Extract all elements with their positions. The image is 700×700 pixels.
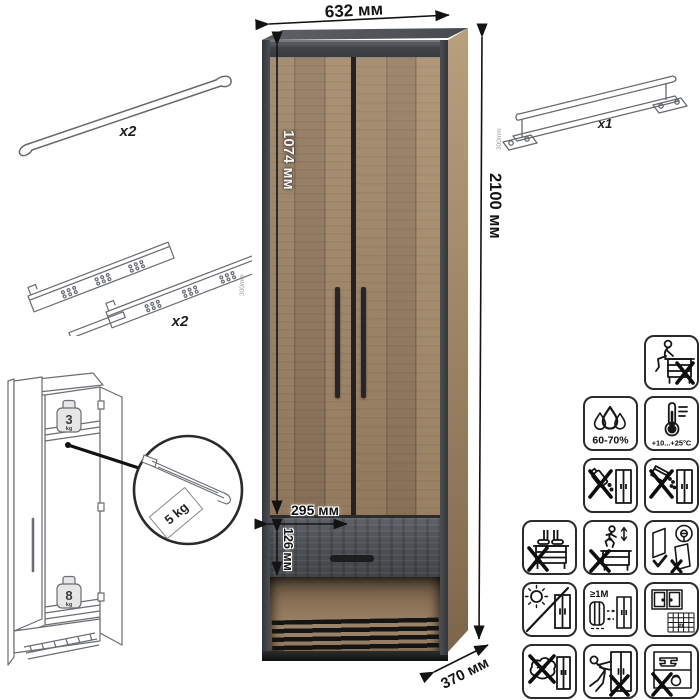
no-wet-cleaning-icon <box>522 644 577 699</box>
wardrobe-left-door <box>14 377 42 631</box>
temperature-label: +10...+25°C <box>652 439 692 448</box>
ventilation-21-days-icon: 21 <box>644 582 699 637</box>
inner-width-dimension-label: 295 мм <box>280 502 350 518</box>
wall-rail-length-label: 300mm <box>496 128 503 150</box>
no-sitting-icon <box>644 335 699 390</box>
slide-rail-2 <box>64 247 252 336</box>
drawer-height-dimension-label: 126 мм <box>281 528 295 571</box>
no-powder-icon <box>644 458 699 513</box>
cabinet-right-frame <box>440 40 448 655</box>
rail-bar <box>513 96 679 141</box>
cabinet-top-band <box>262 40 448 57</box>
wall-rail-drawing: x1 300mm <box>495 58 700 170</box>
drawer-slides-drawing: x2 300mm <box>8 196 252 336</box>
right-door-handle <box>361 287 366 398</box>
cabinet-left-door <box>270 57 351 515</box>
left-door-handle <box>335 287 340 398</box>
hanger-rod-drawing: x2 <box>8 52 248 162</box>
cabinet-right-door <box>356 57 440 515</box>
door-height-dimension-label: 1074 мм <box>280 130 297 190</box>
no-climbing-icon <box>583 520 638 575</box>
slide-rail-1 <box>25 235 174 312</box>
humidity-label: 60-70% <box>592 435 629 447</box>
bottom-shelf-weight-unit: kg <box>66 602 72 608</box>
correct-assembly-icon <box>644 520 699 575</box>
no-sunlight-icon <box>522 582 577 637</box>
cabinet-door-gap <box>351 57 356 515</box>
cabinet-drawer <box>270 518 440 577</box>
product-diagram: 632 мм 2100 мм 1074 мм 295 мм 126 мм 370… <box>0 0 700 700</box>
no-overload-icon <box>644 644 699 699</box>
no-standing-icon <box>522 520 577 575</box>
drawer-slides-length-label: 300mm <box>239 274 246 296</box>
hanger-rod-qty: x2 <box>119 123 137 140</box>
cabinet-left-frame <box>262 40 270 661</box>
wardrobe-right-door <box>100 387 122 645</box>
no-liquids-icon <box>583 458 638 513</box>
top-shelf-weight-value: 3 <box>65 412 72 427</box>
no-pushing-icon <box>583 644 638 699</box>
drawer-handle <box>330 555 374 562</box>
temperature-icon: +10...+25°C <box>644 396 699 451</box>
width-dimension-label: 632 мм <box>295 0 414 24</box>
shoe-rack-slats <box>272 618 440 652</box>
drawer-slides-qty: x2 <box>171 313 189 330</box>
heater-distance-icon: ≥1M <box>583 582 638 637</box>
bottom-shelf-weight-value: 8 <box>65 588 72 603</box>
calendar-day-label: 21 <box>678 623 684 628</box>
height-dimension-label: 2100 мм <box>485 173 504 239</box>
wardrobe-interior-drawing: 3 kg 8 kg 5 kg <box>0 357 255 669</box>
humidity-icon: 60-70% <box>583 396 638 451</box>
cabinet-base <box>262 651 448 661</box>
callout-circle <box>134 436 242 544</box>
height-arrow <box>479 37 482 639</box>
wall-rail-qty: x1 <box>597 116 612 131</box>
cabinet-side-panel <box>448 28 468 652</box>
heater-distance-label: ≥1M <box>590 589 608 600</box>
top-shelf-weight-unit: kg <box>66 426 72 432</box>
